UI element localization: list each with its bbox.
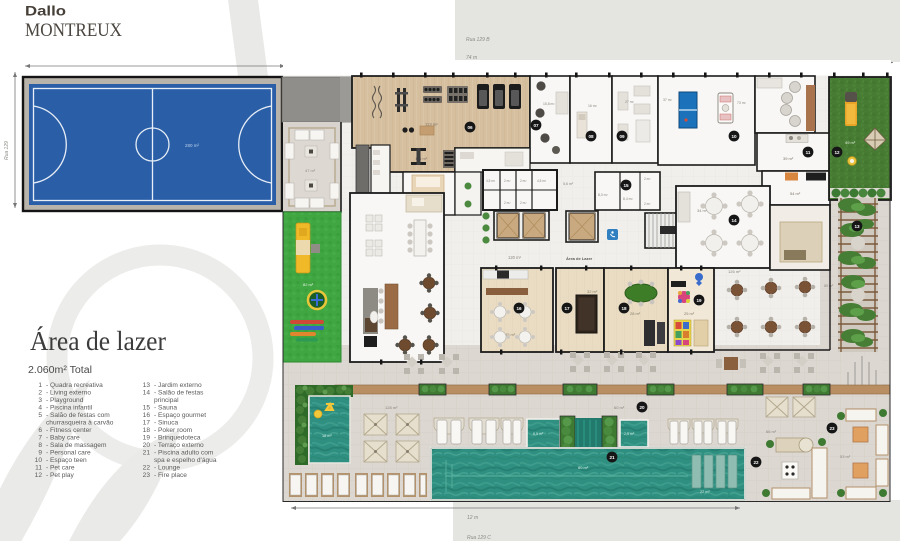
svg-text:- Sala de massagem: - Sala de massagem [46, 442, 107, 449]
svg-text:10: 10 [35, 457, 43, 464]
svg-text:82 m²: 82 m² [303, 282, 314, 287]
svg-text:23: 23 [143, 472, 151, 479]
svg-text:14: 14 [143, 390, 151, 397]
svg-text:37 m²: 37 m² [663, 98, 673, 102]
svg-text:6: 6 [38, 427, 42, 434]
svg-text:- Sauna: - Sauna [154, 405, 177, 412]
svg-text:2.060m² Total: 2.060m² Total [28, 365, 92, 376]
svg-text:- Salão de festas: - Salão de festas [154, 390, 204, 397]
svg-text:08: 08 [588, 134, 594, 139]
svg-text:10: 10 [731, 134, 737, 139]
svg-text:- Pet care: - Pet care [46, 465, 75, 472]
svg-text:2 m²: 2 m² [504, 201, 510, 205]
svg-text:4,5 m²: 4,5 m² [486, 179, 495, 183]
svg-text:spa e espelho d'água: spa e espelho d'água [154, 457, 217, 464]
svg-text:17: 17 [564, 306, 570, 311]
svg-text:85 m²: 85 m² [824, 284, 834, 288]
svg-text:- Poker room: - Poker room [154, 427, 193, 434]
svg-text:15: 15 [143, 405, 151, 412]
svg-text:22: 22 [753, 460, 759, 465]
svg-text:280 m²: 280 m² [185, 143, 200, 148]
svg-text:47 m²: 47 m² [305, 168, 316, 173]
svg-text:2: 2 [38, 390, 42, 397]
svg-text:80 m²: 80 m² [578, 465, 589, 470]
svg-text:23: 23 [829, 426, 835, 431]
svg-text:11: 11 [35, 465, 42, 472]
svg-text:16 m²: 16 m² [588, 104, 598, 108]
svg-text:28 m²: 28 m² [630, 311, 641, 316]
svg-text:18 m²: 18 m² [322, 434, 332, 438]
svg-text:12: 12 [35, 472, 43, 479]
svg-text:13: 13 [143, 382, 151, 389]
svg-text:8: 8 [38, 442, 42, 449]
svg-text:Área de Lazer: Área de Lazer [566, 256, 593, 261]
svg-text:Rua 129 C: Rua 129 C [467, 535, 491, 541]
svg-text:2 m²: 2 m² [520, 201, 526, 205]
svg-text:20: 20 [143, 442, 151, 449]
svg-text:Dallo: Dallo [25, 3, 66, 19]
svg-text:22: 22 [143, 465, 151, 472]
svg-text:- Fitness center: - Fitness center [46, 427, 92, 434]
svg-text:07: 07 [533, 123, 539, 128]
svg-text:49 m²: 49 m² [845, 140, 856, 145]
svg-text:73 m²: 73 m² [737, 101, 747, 105]
svg-text:21: 21 [609, 455, 615, 460]
svg-text:15,8 m²: 15,8 m² [543, 102, 555, 106]
svg-text:- Playground: - Playground [46, 397, 84, 404]
svg-text:- Sinuca: - Sinuca [154, 420, 179, 427]
svg-text:15: 15 [623, 183, 629, 188]
svg-text:3: 3 [38, 397, 42, 404]
svg-text:- Terraço externo: - Terraço externo [154, 442, 204, 449]
svg-text:- Brinquedoteca: - Brinquedoteca [154, 435, 201, 442]
svg-text:18: 18 [143, 427, 151, 434]
svg-text:2 m²: 2 m² [520, 179, 526, 183]
svg-text:18: 18 [621, 306, 627, 311]
svg-text:- Piscina infantil: - Piscina infantil [46, 405, 93, 412]
svg-text:21: 21 [143, 450, 151, 457]
svg-text:27 m²: 27 m² [625, 100, 635, 104]
svg-text:- Lounge: - Lounge [154, 465, 180, 472]
svg-text:54 m²: 54 m² [790, 191, 801, 196]
svg-text:12: 12 [834, 150, 840, 155]
svg-text:13: 13 [854, 224, 860, 229]
svg-text:5,6 m²: 5,6 m² [563, 182, 574, 186]
svg-text:- Jardim externo: - Jardim externo [154, 382, 202, 389]
svg-text:8,4 m²: 8,4 m² [623, 197, 633, 201]
svg-text:- Espaço gourmet: - Espaço gourmet [154, 412, 206, 419]
svg-text:MONTREUX: MONTREUX [25, 20, 122, 41]
svg-text:2 m²: 2 m² [644, 177, 650, 181]
svg-text:- Salão de festas com: - Salão de festas com [46, 412, 110, 419]
svg-text:19: 19 [696, 298, 702, 303]
svg-text:churrasqueira à carvão: churrasqueira à carvão [46, 420, 114, 427]
svg-text:66 m²: 66 m² [766, 429, 777, 434]
svg-text:17: 17 [143, 420, 151, 427]
svg-text:5: 5 [38, 412, 42, 419]
svg-text:06: 06 [467, 125, 473, 130]
svg-text:7: 7 [38, 435, 42, 442]
svg-text:120 m²: 120 m² [508, 255, 522, 260]
svg-text:14: 14 [731, 218, 737, 223]
svg-text:- Pet play: - Pet play [46, 472, 75, 479]
svg-text:Rua 129: Rua 129 [4, 141, 10, 160]
svg-text:- Fire place: - Fire place [154, 472, 187, 479]
svg-text:- Personal care: - Personal care [46, 450, 91, 457]
svg-text:25 m²: 25 m² [684, 311, 695, 316]
svg-text:16: 16 [143, 412, 151, 419]
svg-text:4,5 m²: 4,5 m² [537, 179, 546, 183]
svg-text:2 m²: 2 m² [644, 202, 650, 206]
svg-text:- Baby care: - Baby care [46, 435, 80, 442]
svg-text:22 m²: 22 m² [700, 490, 710, 494]
svg-text:2,5 m²: 2,5 m² [624, 432, 635, 436]
svg-text:20: 20 [639, 405, 645, 410]
svg-text:principal: principal [154, 397, 179, 404]
svg-text:126 m²: 126 m² [728, 269, 741, 274]
svg-text:- Quadra recreativa: - Quadra recreativa [46, 382, 103, 389]
svg-text:Área de lazer: Área de lazer [30, 326, 166, 356]
svg-text:6,5 m²: 6,5 m² [533, 432, 544, 436]
svg-text:- Piscina adulto com: - Piscina adulto com [154, 450, 214, 457]
svg-text:1: 1 [38, 382, 42, 389]
svg-text:- Living externo: - Living externo [46, 390, 91, 397]
svg-text:11: 11 [806, 150, 811, 155]
svg-text:2 m²: 2 m² [504, 179, 510, 183]
svg-text:Rua 129 B: Rua 129 B [466, 37, 490, 43]
svg-text:12 m: 12 m [467, 515, 478, 521]
svg-text:39 m²: 39 m² [783, 156, 794, 161]
svg-text:128 m²: 128 m² [385, 405, 398, 410]
svg-text:32 m²: 32 m² [587, 289, 598, 294]
svg-text:19: 19 [143, 435, 151, 442]
svg-text:09: 09 [619, 134, 625, 139]
svg-text:8,0 m²: 8,0 m² [598, 193, 608, 197]
svg-text:16: 16 [516, 306, 522, 311]
svg-text:60 m²: 60 m² [614, 405, 625, 410]
svg-text:53 m²: 53 m² [840, 454, 851, 459]
svg-text:9: 9 [38, 450, 42, 457]
svg-text:4: 4 [38, 405, 42, 412]
svg-text:- Espaço teen: - Espaço teen [46, 457, 87, 464]
